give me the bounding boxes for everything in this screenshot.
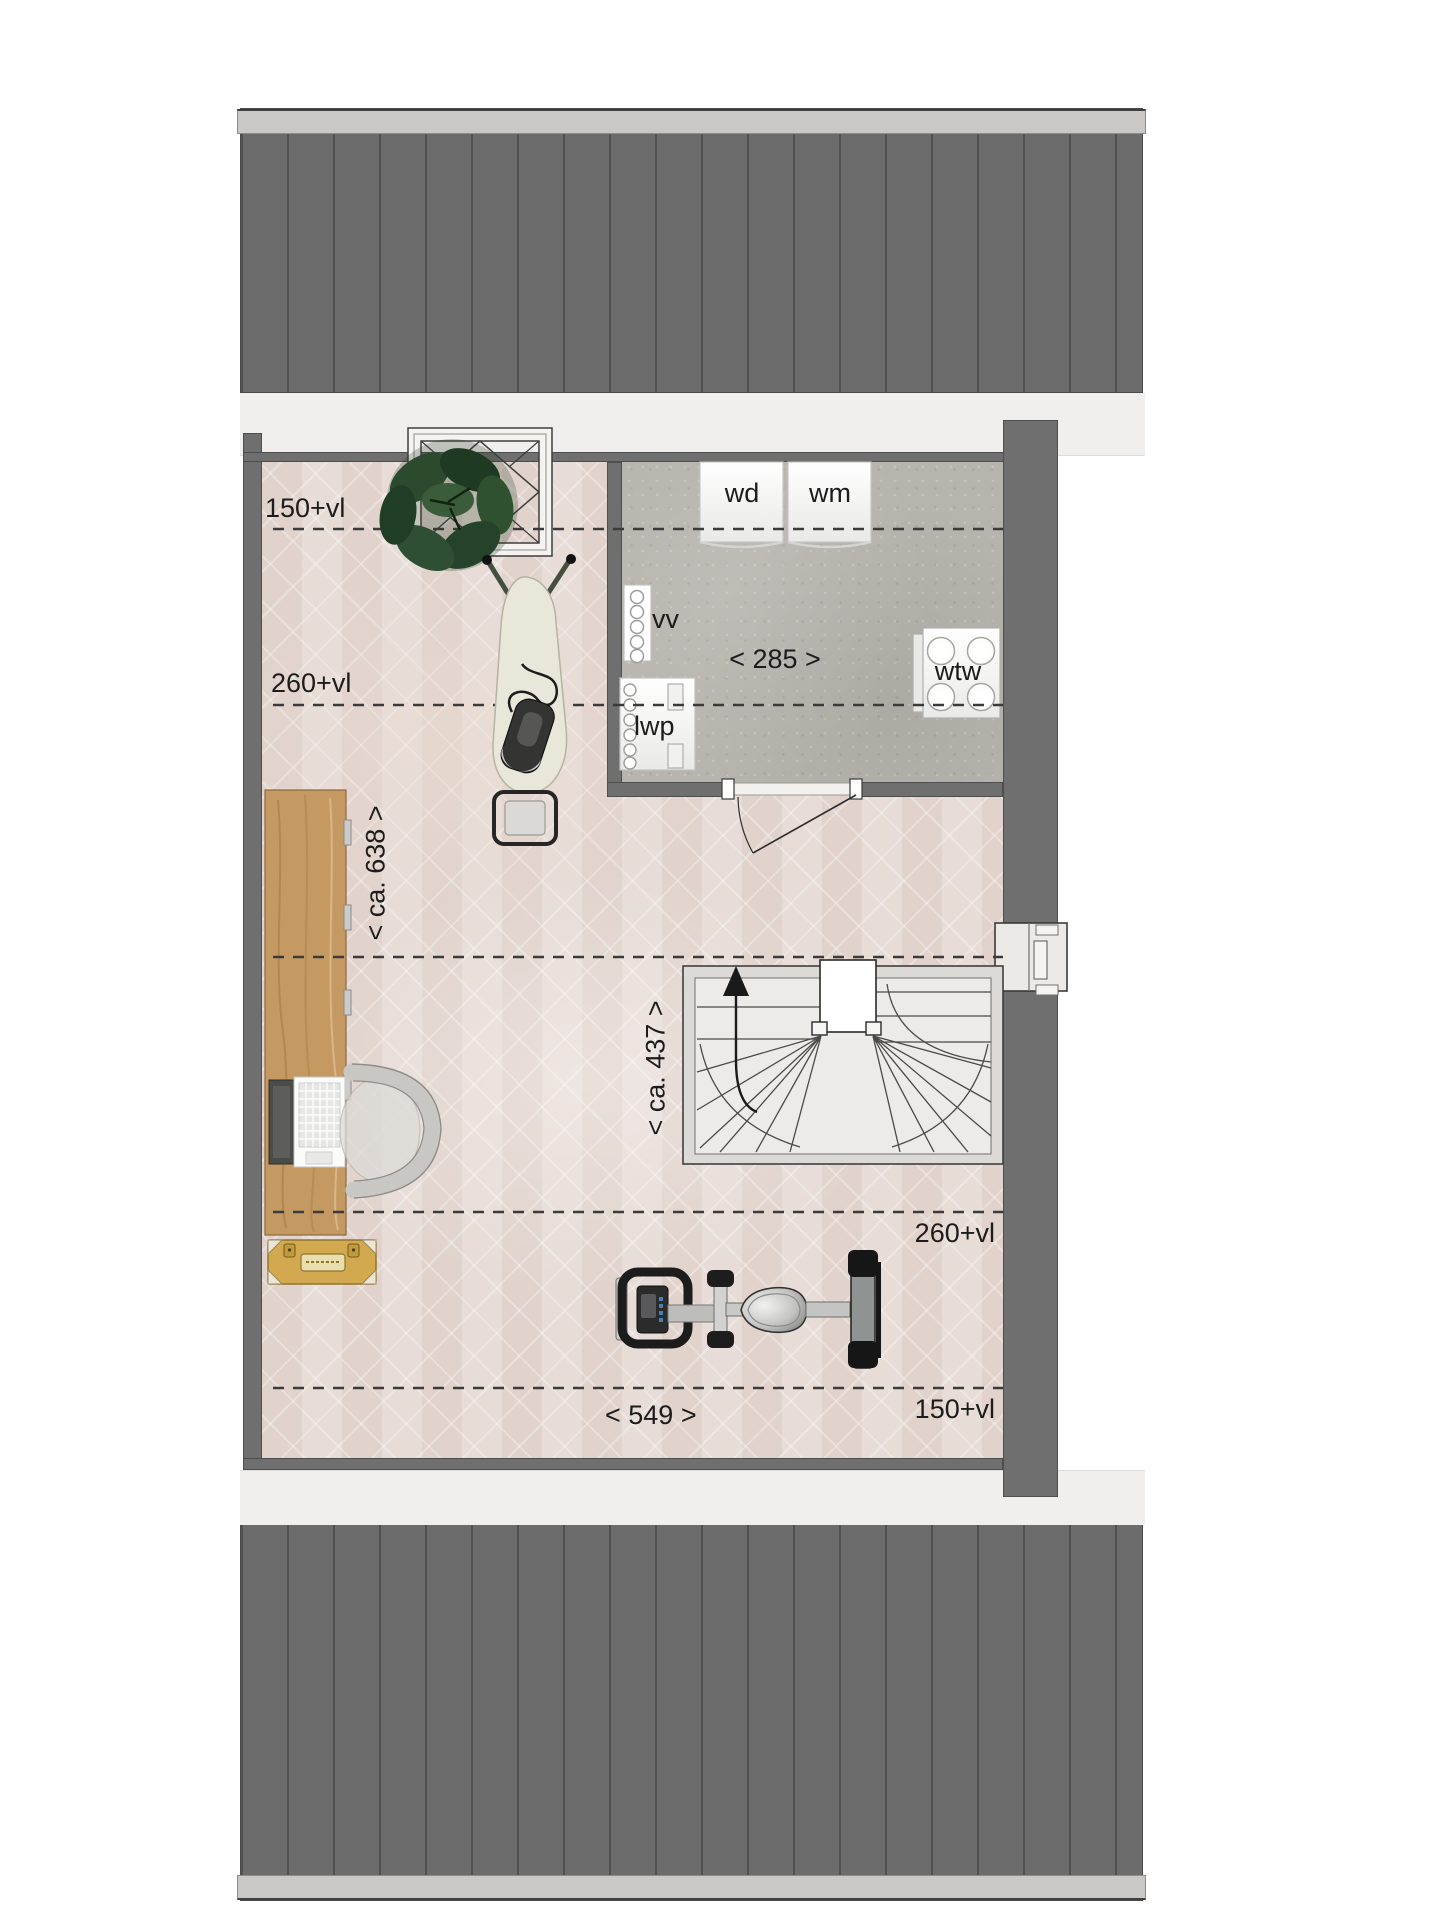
stair-void <box>820 960 876 1032</box>
dormer-window <box>995 923 1067 995</box>
floorplan-canvas: 150+vl 260+vl < 285 > < ca. 638 > < ca. … <box>0 0 1440 1920</box>
desk <box>265 790 351 1235</box>
label-vv: vv <box>652 606 679 633</box>
label-260vl-top: 260+vl <box>271 670 351 697</box>
storage-chest <box>268 1240 376 1284</box>
laptop <box>269 1077 345 1167</box>
label-lwp: lwp <box>634 713 675 740</box>
label-wm: wm <box>809 480 851 507</box>
label-150vl-top: 150+vl <box>265 495 345 522</box>
label-549: < 549 > <box>605 1402 697 1429</box>
vent-grille-vv <box>624 585 651 663</box>
stool <box>494 792 556 844</box>
plant <box>375 439 518 580</box>
exercise-bike <box>616 1250 881 1368</box>
label-150vl-bottom: 150+vl <box>915 1396 995 1423</box>
laundry-door <box>722 779 862 853</box>
bike-pedal-bottom <box>707 1331 734 1348</box>
plan-graphics <box>0 0 1440 1920</box>
label-wd: wd <box>725 480 760 507</box>
bike-pedal-top <box>707 1270 734 1287</box>
label-260vl-bottom: 260+vl <box>915 1220 995 1247</box>
label-285: < 285 > <box>729 646 821 673</box>
staircase <box>683 960 1003 1164</box>
ironing-board <box>482 554 576 844</box>
label-ca437: < ca. 437 > <box>643 1000 670 1135</box>
office-chair <box>340 1064 441 1198</box>
label-wtw: wtw <box>935 658 982 685</box>
label-ca638: < ca. 638 > <box>363 805 390 940</box>
